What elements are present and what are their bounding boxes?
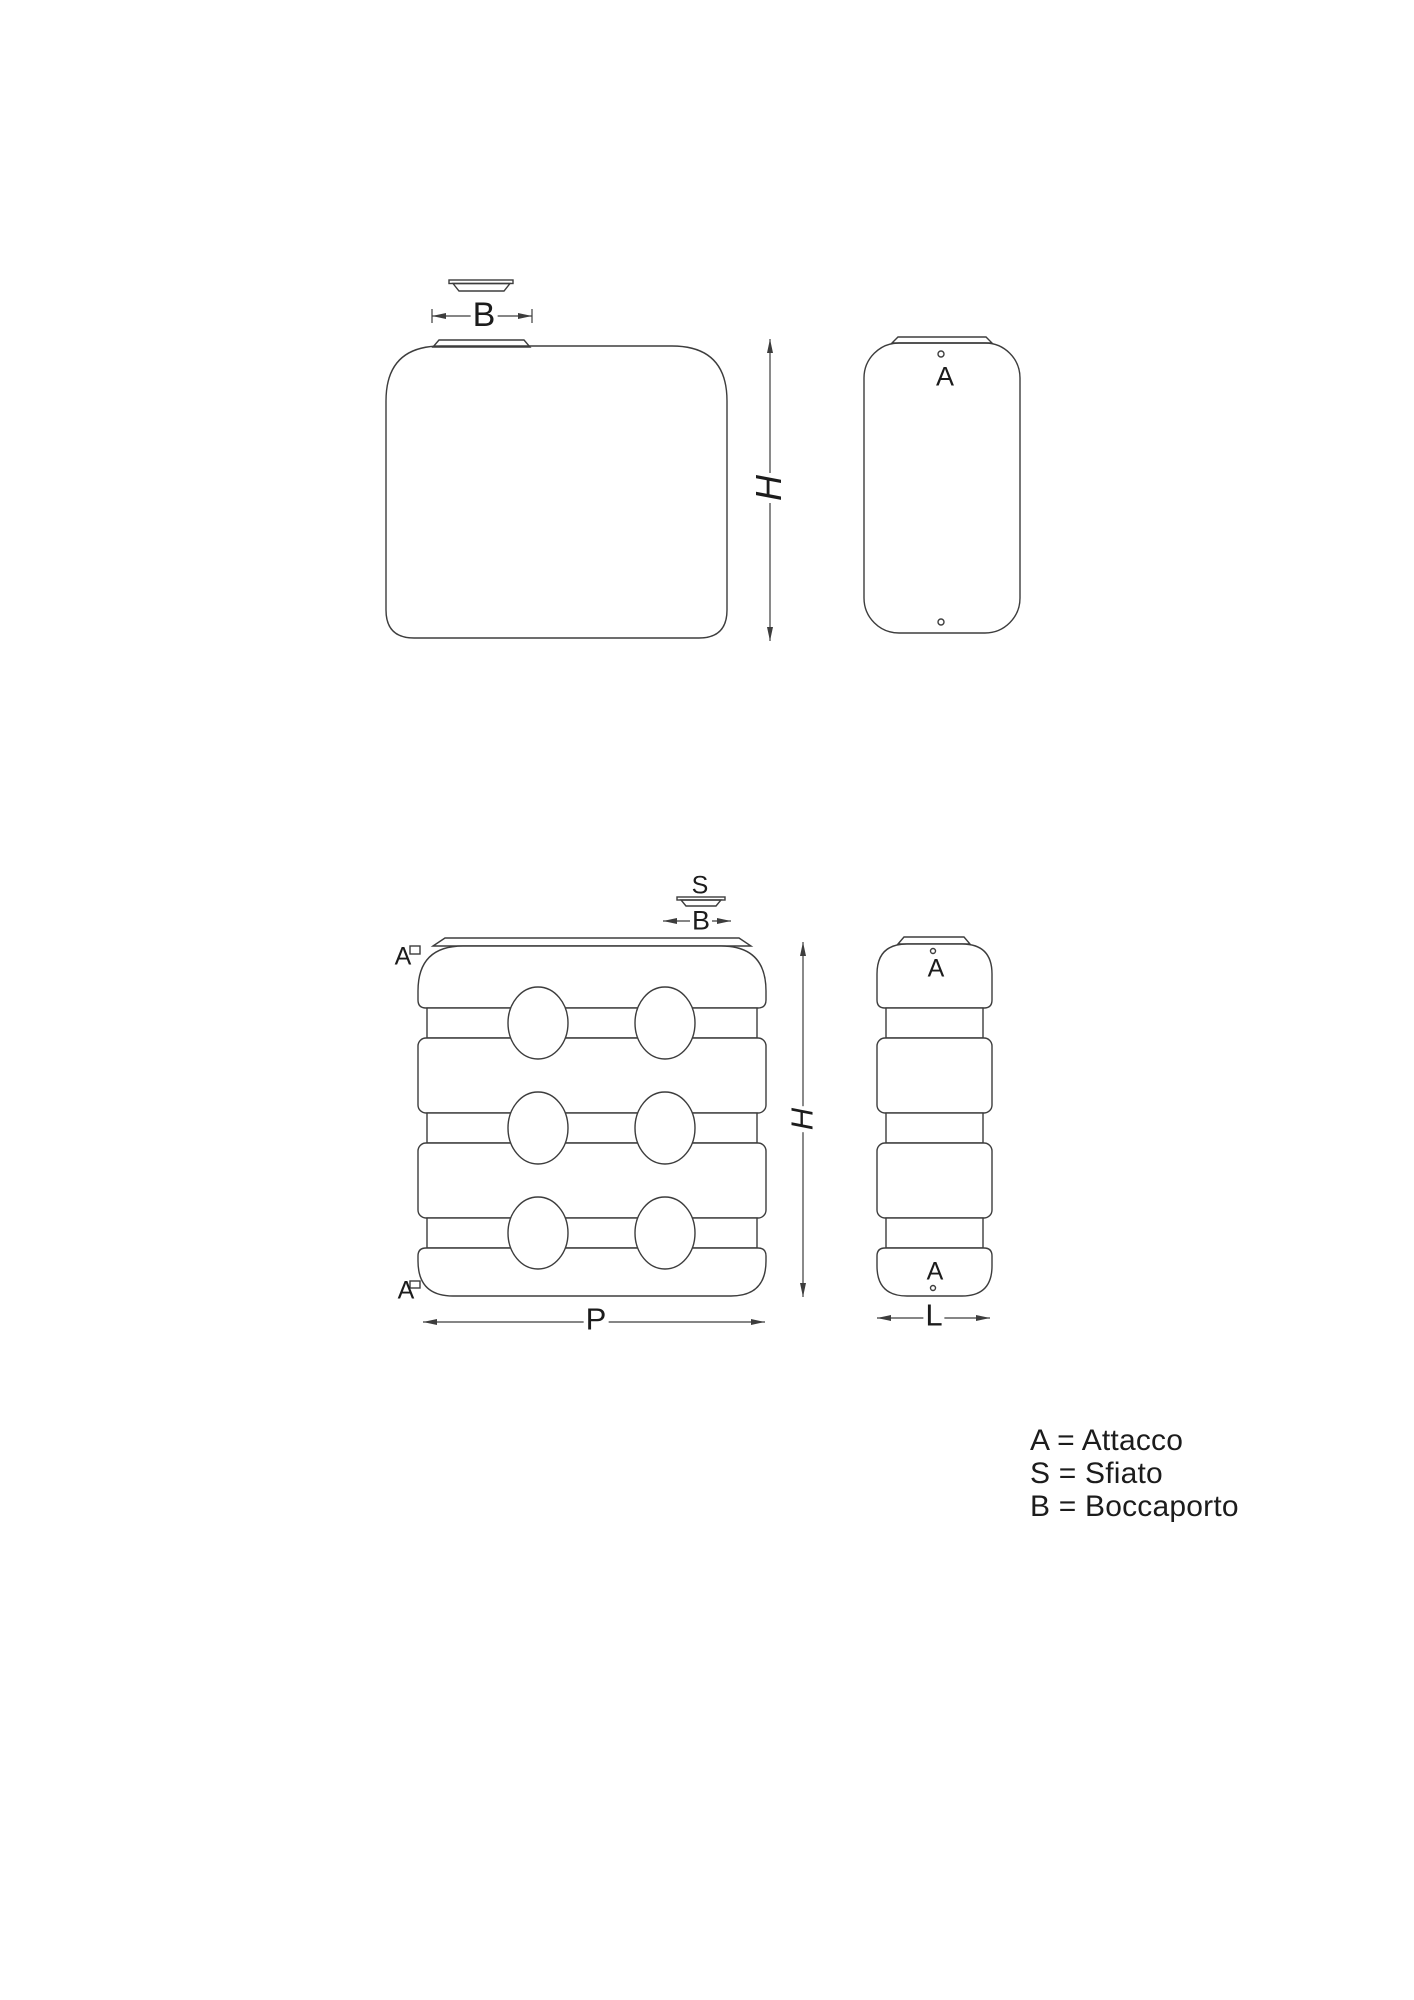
tank2-boss <box>508 1092 568 1164</box>
legend-item-sfiato: S = Sfiato <box>1030 1457 1239 1490</box>
label-a-tank2-side-bottom: A <box>925 1260 946 1285</box>
tank1-front-view <box>386 340 727 638</box>
tank2-side-rim <box>898 937 970 944</box>
dim-label-h-top: H <box>751 473 787 503</box>
tank1-attacco-bottom-hole <box>938 619 944 625</box>
tank2-side-view <box>877 937 992 1296</box>
dim-label-h-bottom: H <box>787 1106 818 1132</box>
label-a-tank2-front-top: A <box>393 945 414 970</box>
tank1-lid <box>449 280 513 291</box>
tank2-rim <box>433 938 751 946</box>
legend-item-attacco: A = Attacco <box>1030 1424 1239 1457</box>
dim-label-b-top: B <box>471 298 498 332</box>
legend: A = Attacco S = Sfiato B = Boccaporto <box>1030 1424 1239 1523</box>
tank1-side-neck <box>892 337 992 343</box>
tank2-boss <box>635 987 695 1059</box>
technical-drawing-svg <box>0 0 1414 2000</box>
tank2-boss <box>635 1092 695 1164</box>
dim-label-p: P <box>584 1304 609 1335</box>
label-a-tank2-front-bottom: A <box>396 1279 417 1304</box>
label-a-tank2-side-top: A <box>926 957 947 982</box>
technical-drawing-page: B H A S B A A H P A A L A = Attacco S = … <box>0 0 1414 2000</box>
tank2-boss <box>508 987 568 1059</box>
label-a-tank1-side: A <box>934 364 956 391</box>
tank2-attacco-bottom-hole <box>931 1286 936 1291</box>
tank2-boss <box>508 1197 568 1269</box>
tank1-attacco-top-hole <box>938 351 944 357</box>
label-s-vent: S <box>690 874 711 899</box>
legend-item-boccaporto: B = Boccaporto <box>1030 1490 1239 1523</box>
dim-label-b-bottom: B <box>690 908 712 935</box>
tank2-attacco-top-hole <box>931 949 936 954</box>
tank2-boss <box>635 1197 695 1269</box>
dim-label-l: L <box>923 1300 944 1331</box>
tank2-front-view <box>418 938 766 1296</box>
